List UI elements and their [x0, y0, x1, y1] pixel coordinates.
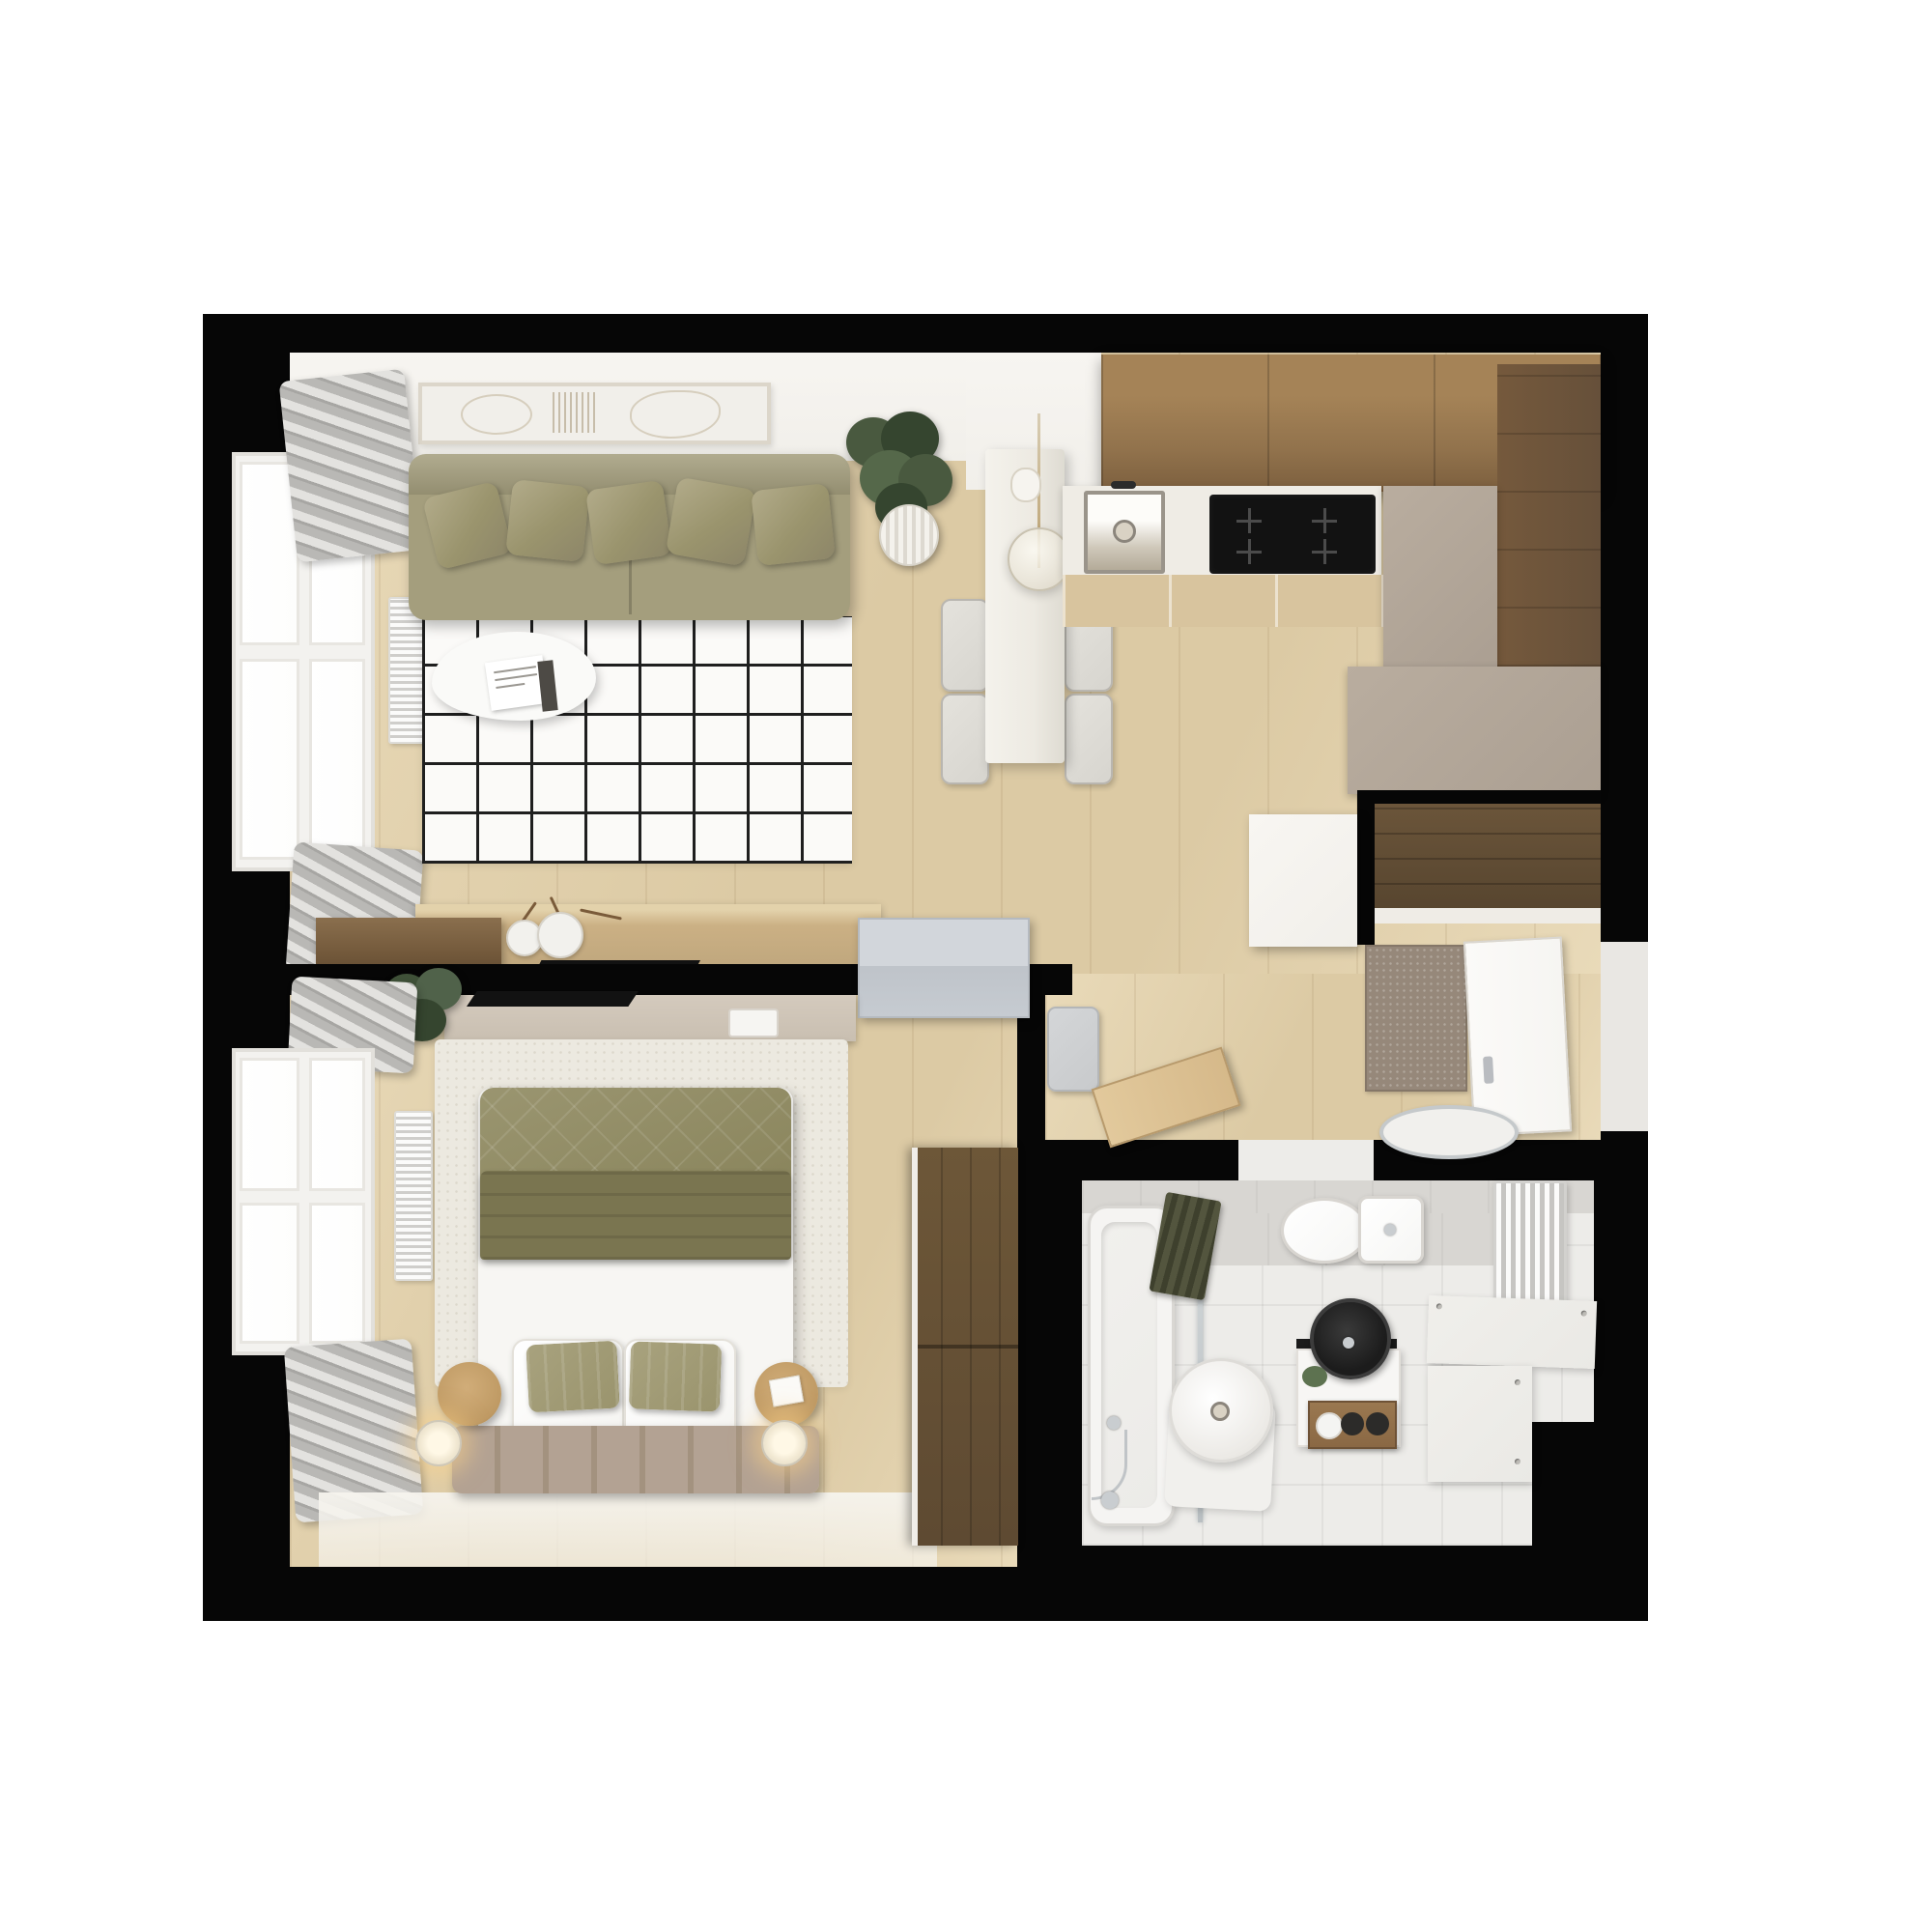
window-pane — [240, 1058, 299, 1191]
niche-top-wall — [1357, 790, 1601, 804]
bed-pillow-green — [526, 1341, 620, 1413]
ladder-towel-radiator — [1493, 1180, 1567, 1309]
kitchen-sink — [1084, 491, 1165, 574]
bar-stool — [941, 599, 989, 692]
wall-artwork — [418, 383, 771, 444]
bathroom-bench-front — [1428, 1366, 1532, 1482]
bedroom-window — [232, 1048, 375, 1355]
tub-faucet — [1107, 1416, 1121, 1430]
bedroom-radiator — [394, 1111, 433, 1281]
towel-rack — [1308, 1401, 1397, 1449]
bathroom-corner-bench — [1427, 1295, 1597, 1369]
door-handle — [1483, 1056, 1493, 1083]
kitchen-faucet — [1111, 481, 1136, 489]
bathroom-step-wall — [1532, 1422, 1648, 1621]
hall-bench — [1047, 1007, 1099, 1092]
niche-shelf-edge — [1375, 908, 1601, 923]
window-pane — [309, 1058, 365, 1191]
entrance-opening — [1601, 942, 1648, 1131]
ceramic-vase — [537, 912, 583, 958]
kitchen-base-cabinets — [1063, 575, 1383, 627]
window-pane — [309, 1203, 365, 1344]
bar-stool — [1065, 694, 1113, 784]
entrance-door — [1463, 936, 1572, 1136]
sofa-pillow — [751, 483, 836, 566]
window-pane — [309, 659, 365, 860]
window-pane — [240, 1203, 299, 1344]
toilet-cistern — [1358, 1196, 1424, 1264]
bedside-notepad — [769, 1375, 804, 1406]
induction-cooktop — [1209, 495, 1376, 574]
artwork-hatch-motif — [553, 392, 597, 433]
sofa-pillow — [505, 479, 590, 562]
plant-pot — [879, 504, 939, 566]
reading-lamp — [415, 1420, 462, 1466]
bedside-table — [438, 1362, 501, 1426]
bathroom-doorway-threshold — [1238, 1140, 1374, 1182]
greige-cabinet-block — [1348, 667, 1601, 794]
entry-mat — [1365, 945, 1467, 1092]
window-pane — [240, 659, 299, 860]
living-curtain-top — [279, 369, 423, 563]
bar-stool — [941, 694, 989, 784]
bedroom-bright-floor — [319, 1492, 937, 1567]
partition-wall-strip — [1357, 790, 1375, 945]
bed-duvet-fold — [480, 1171, 791, 1260]
vanity-faucet — [1343, 1337, 1354, 1349]
toilet-bowl — [1281, 1198, 1368, 1264]
bed-pillow-green — [629, 1341, 722, 1411]
shelf-device — [728, 1009, 779, 1037]
bedroom-sliding-door — [858, 918, 1030, 1018]
artwork-line-motif — [461, 394, 532, 435]
freestanding-basin — [1169, 1358, 1273, 1463]
artwork-line-motif — [630, 390, 721, 439]
entry-wardrobe-niche — [1375, 804, 1601, 910]
coffee-cup — [1010, 468, 1041, 502]
sofa-pillow — [666, 476, 757, 566]
laundry-basket — [1379, 1105, 1519, 1159]
bedroom-tv — [467, 991, 639, 1007]
kitchen-tall-dark-cabinet — [1497, 364, 1601, 667]
sofa — [409, 454, 850, 620]
flush-button — [1384, 1224, 1396, 1236]
shower-handset — [1101, 1492, 1119, 1509]
white-partition-block — [1249, 814, 1357, 947]
bathroom-left-wall — [1045, 1180, 1082, 1548]
wardrobe-divider — [918, 1345, 1018, 1349]
vanity-plant — [1302, 1366, 1327, 1387]
kitchen-greige-base — [1383, 486, 1497, 667]
reading-lamp — [761, 1420, 808, 1466]
sofa-pillow — [585, 480, 672, 565]
bedroom-wardrobe — [912, 1148, 1018, 1546]
floor-plan-render — [0, 0, 1932, 1932]
potted-plant-living — [842, 412, 958, 566]
